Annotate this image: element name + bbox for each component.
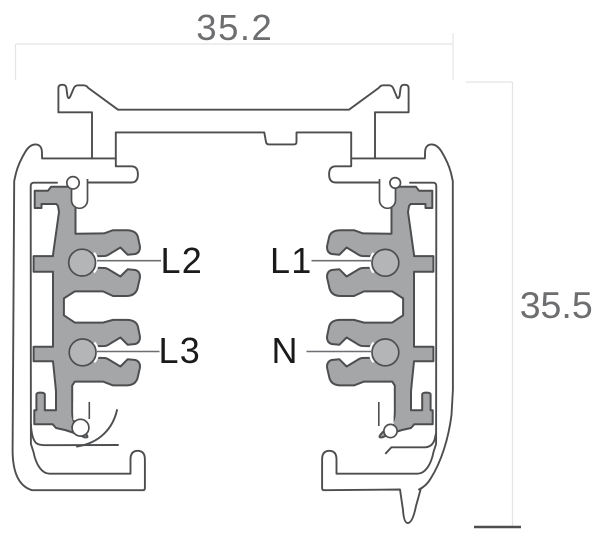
svg-text:N: N — [272, 330, 298, 371]
svg-text:35.2: 35.2 — [196, 7, 273, 48]
svg-text:L3: L3 — [159, 330, 201, 371]
svg-text:L1: L1 — [270, 240, 312, 281]
svg-text:L2: L2 — [161, 240, 203, 281]
svg-text:35.5: 35.5 — [520, 284, 593, 326]
